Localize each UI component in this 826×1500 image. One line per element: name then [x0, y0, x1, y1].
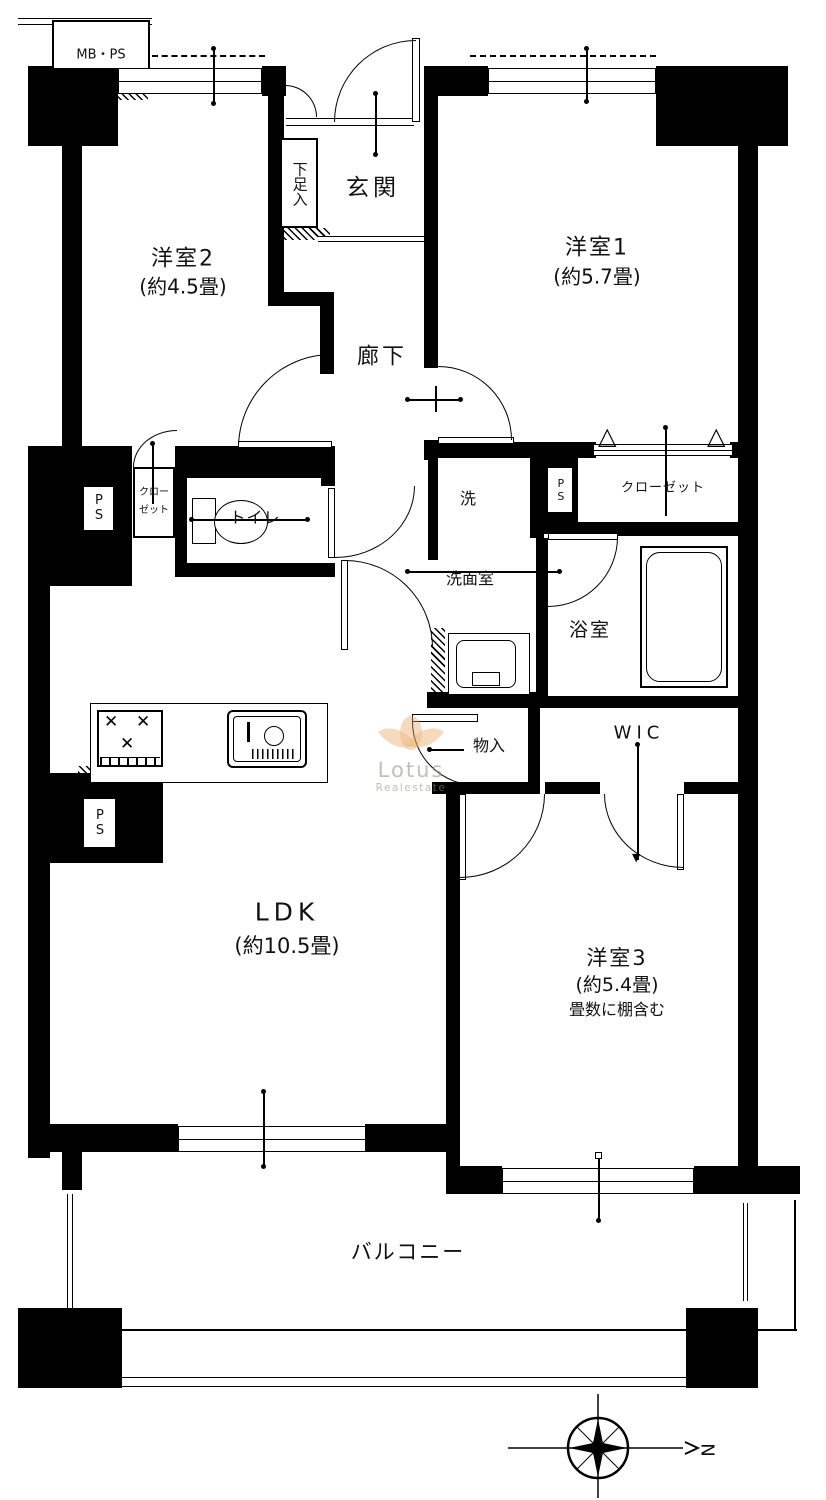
ps-label: PS: [92, 808, 107, 838]
room3-note: 畳数に棚含む: [569, 1001, 665, 1019]
dimension-dot: [150, 441, 155, 446]
hallway-label: 廊下: [357, 344, 407, 369]
wall-segment: [28, 66, 118, 146]
dimension-line: [598, 1156, 600, 1220]
dimension-dot: [458, 397, 463, 402]
dimension-dot: [596, 1218, 601, 1223]
closet-small-label: クローゼット: [136, 484, 172, 520]
drain-icon: [264, 726, 284, 746]
watermark-brand: Lotus: [375, 758, 447, 782]
lotus-logo-icon: [375, 712, 447, 758]
wall-segment: [536, 538, 548, 696]
wall-segment: [446, 794, 460, 1124]
dimension-dot: [405, 397, 410, 402]
wall-segment: [545, 782, 600, 794]
dimension-line: [408, 399, 460, 401]
dimension-dot: [261, 1164, 266, 1169]
mbps-label: MB・PS: [76, 49, 125, 64]
wall-segment: [262, 66, 286, 96]
door-leaf: [328, 488, 335, 558]
balcony-railing: [122, 1377, 686, 1387]
dimension-dot: [584, 99, 589, 104]
dimension-dot: [557, 569, 562, 574]
room2-label: 洋室2: [151, 246, 215, 271]
wall-segment: [424, 94, 438, 244]
balcony-label: バルコニー: [351, 1240, 466, 1264]
window: [118, 68, 262, 94]
genkan-label: 玄関: [346, 175, 400, 201]
balcony-divider: [67, 1194, 73, 1308]
wall-segment: [424, 66, 488, 96]
dimension-line: [435, 386, 437, 412]
dimension-dot: [373, 91, 378, 96]
hatch-wall: [431, 628, 445, 696]
dimension-line: [263, 1092, 265, 1166]
ps-label: PS: [554, 477, 567, 503]
toilet-label: トイレ: [229, 509, 280, 527]
door-arc: [604, 794, 684, 868]
ps-label: PS: [91, 493, 106, 523]
room1-size: (約5.7畳): [553, 266, 640, 289]
dimension-line: [586, 48, 588, 102]
wall-segment: [28, 446, 50, 1158]
wic-label: WIC: [614, 724, 665, 745]
dimension-line: [665, 428, 667, 516]
dimension-line: [213, 48, 215, 104]
door-arc: [285, 85, 317, 117]
dimension-dot: [663, 425, 668, 430]
dimension-dot: [405, 569, 410, 574]
dimension-dot: [189, 517, 194, 522]
compass-north-label: N: [696, 1443, 717, 1456]
wall-segment: [62, 146, 82, 448]
room1-label: 洋室1: [565, 235, 629, 260]
wall-segment: [536, 696, 738, 708]
wall-segment: [530, 452, 544, 538]
hanger-icon: △: [707, 424, 725, 448]
wall-segment: [446, 1124, 460, 1194]
door-arc: [335, 486, 415, 558]
wall-segment: [460, 1166, 502, 1194]
shoe-storage-label: 下足入: [290, 162, 307, 207]
wall-segment: [175, 446, 335, 478]
dimension-dot: [211, 101, 216, 106]
wall-segment: [62, 1152, 82, 1190]
roof-dashed-line: [152, 55, 265, 57]
wall-segment: [694, 1166, 800, 1194]
door-arc: [345, 560, 433, 648]
dimension-dot: [261, 1089, 266, 1094]
balcony-pillar: [686, 1308, 758, 1388]
wall-segment: [684, 782, 738, 794]
roof-dashed-line: [470, 55, 656, 57]
ldk-label: LDK: [255, 899, 320, 928]
balcony-edge-line: [794, 1200, 796, 1331]
dimension-line: [375, 93, 377, 155]
watermark: Lotus Realestate: [375, 712, 447, 794]
balcony-divider: [743, 1203, 748, 1301]
toilet-icon: [192, 498, 216, 544]
wall-segment: [424, 244, 438, 368]
room2-size: (約4.5畳): [139, 276, 226, 299]
wall-segment: [446, 782, 460, 794]
dimension-dot: [211, 46, 216, 51]
washbasin-icon: [472, 672, 500, 686]
washroom-label: 洗面室: [446, 570, 494, 588]
balcony-pillar: [18, 1308, 122, 1388]
stove-grill: [100, 757, 160, 766]
entrance-step-line: [318, 236, 424, 242]
burner-icon: ✕: [120, 736, 134, 753]
wall-segment: [365, 1124, 446, 1152]
drainboard-icon: [252, 749, 296, 759]
floor-plan: △ △ ✕ ✕ ✕ ▼: [0, 0, 826, 1500]
bathtub-icon: [646, 552, 722, 682]
window: [178, 1126, 366, 1152]
room3-label: 洋室3: [586, 946, 647, 970]
bathroom-top-wall: [616, 532, 738, 536]
door-arc: [238, 354, 332, 448]
closet-label: クローゼット: [621, 482, 705, 497]
wall-segment: [321, 446, 335, 486]
door-arc: [438, 366, 512, 440]
dimension-dot: [584, 46, 589, 51]
dimension-dot: [595, 1152, 602, 1159]
wall-segment: [738, 146, 758, 1194]
hanger-icon: △: [598, 424, 616, 448]
dimension-line: [637, 745, 639, 860]
wall-segment: [175, 466, 187, 564]
burner-icon: ✕: [136, 714, 150, 731]
window: [488, 68, 656, 94]
watermark-sub: Realestate: [375, 782, 447, 794]
wall-segment: [28, 1124, 178, 1152]
dimension-dot: [305, 517, 310, 522]
faucet-icon: [247, 722, 250, 742]
ldk-size: (約10.5畳): [234, 934, 339, 958]
dimension-dot: [373, 152, 378, 157]
wall-segment: [175, 563, 335, 577]
door-arc: [460, 794, 545, 878]
door-arc: [133, 430, 177, 467]
balcony-edge-line: [122, 1329, 797, 1331]
room3-size: (約5.4畳): [575, 975, 658, 997]
wall-segment: [428, 442, 438, 560]
laundry-label: 洗: [460, 490, 476, 508]
wall-segment: [656, 66, 788, 146]
storage-label: 物入: [473, 737, 505, 755]
burner-icon: ✕: [104, 714, 118, 731]
bathroom-label: 浴室: [569, 620, 611, 642]
